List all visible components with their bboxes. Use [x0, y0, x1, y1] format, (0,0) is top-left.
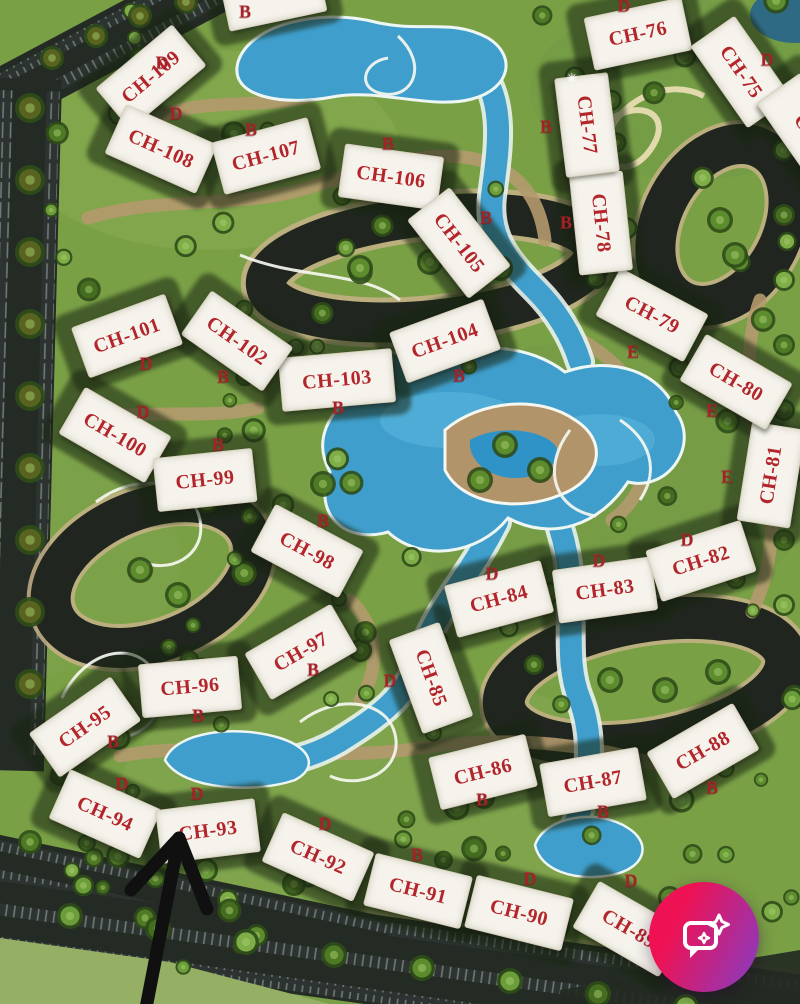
- building-label: CH-104: [408, 318, 481, 363]
- unit-type-marker: D: [618, 0, 631, 17]
- unit-type-marker: D: [384, 671, 397, 692]
- unit-type-marker: D: [486, 564, 499, 585]
- sparkle-star-small: [699, 933, 709, 943]
- unit-type-marker: D: [681, 530, 694, 551]
- building-label: CH-83: [574, 574, 636, 605]
- unit-type-marker: B: [411, 845, 423, 866]
- building-label: CH-82: [669, 541, 732, 581]
- unit-type-marker: B: [476, 790, 488, 811]
- unit-type-marker: D: [761, 50, 774, 71]
- building-label: CH-97: [270, 627, 333, 677]
- building-ch-96: CH-96: [138, 656, 242, 719]
- unit-type-marker: D: [170, 104, 183, 125]
- unit-type-marker: E: [721, 467, 733, 488]
- building-label: CH-103: [301, 366, 372, 395]
- building-label: CH-88: [672, 726, 735, 776]
- unit-type-marker: D: [191, 784, 204, 805]
- unit-type-marker: B: [382, 134, 394, 155]
- unit-type-marker: D: [625, 871, 638, 892]
- unit-type-marker: D: [524, 869, 537, 890]
- building-label: CH-79: [620, 291, 683, 339]
- unit-type-marker: B: [239, 2, 251, 23]
- building-label: CH-84: [467, 580, 530, 618]
- building-label: CH-90: [488, 895, 551, 932]
- unit-type-marker: B: [192, 706, 204, 727]
- unit-type-marker: B: [560, 213, 572, 234]
- building-label: CH-81: [755, 444, 787, 506]
- unit-type-marker: D: [140, 354, 153, 375]
- building-label: CH-78: [586, 192, 615, 253]
- unit-type-marker: B: [597, 802, 609, 823]
- building-label: CH-87: [562, 766, 624, 799]
- building-label: CH-77: [572, 94, 602, 156]
- unit-type-marker: B: [307, 660, 319, 681]
- building-label: CH-106: [355, 161, 427, 193]
- chat-sparkle-icon: [676, 909, 732, 965]
- building-label: CH-93: [177, 816, 239, 846]
- building-label: CH-99: [174, 465, 235, 494]
- unit-type-marker: B: [453, 366, 465, 387]
- building-label: CH-75: [715, 41, 768, 103]
- units-layer: CH-109CH-108CH-107CH-106CH-105CH-104CH-1…: [0, 0, 800, 1004]
- unit-type-marker: B: [540, 117, 552, 138]
- unit-type-marker: B: [706, 778, 718, 799]
- masterplan-map: CH-109CH-108CH-107CH-106CH-105CH-104CH-1…: [0, 0, 800, 1004]
- building-label: CH-101: [90, 313, 163, 358]
- unit-type-marker: B: [332, 398, 344, 419]
- unit-type-marker: E: [706, 401, 718, 422]
- unit-type-marker: E: [627, 342, 639, 363]
- building-label: CH-92: [286, 834, 349, 879]
- building-label: CH-108: [124, 124, 197, 173]
- building-label: CH-107: [229, 136, 302, 176]
- unit-type-marker: D: [116, 774, 129, 795]
- unit-type-marker: B: [217, 367, 229, 388]
- unit-type-marker: B: [317, 511, 329, 532]
- building-label: CH-86: [452, 754, 515, 791]
- building-label: CH-85: [410, 646, 452, 709]
- building-label: CH-96: [160, 673, 221, 701]
- building-ch-99: CH-99: [152, 448, 257, 512]
- unit-type-marker: D: [319, 814, 332, 835]
- building-label: CH: [789, 110, 800, 149]
- unit-type-marker: B: [107, 732, 119, 753]
- unit-type-marker: B: [212, 435, 224, 456]
- unit-type-marker: B: [480, 208, 492, 229]
- unit-type-marker: D: [137, 402, 150, 423]
- building-label: CH-94: [73, 791, 136, 836]
- building-label: CH-91: [387, 873, 450, 910]
- building-ch-78: CH-78: [569, 170, 633, 275]
- sparkle-star-large: [710, 915, 729, 934]
- unit-type-marker: D: [156, 53, 169, 74]
- building-label: CH-98: [275, 527, 338, 575]
- star-marker-icon: ✳: [567, 72, 578, 87]
- building-label: CH-80: [705, 357, 768, 407]
- chat-button[interactable]: [649, 882, 759, 992]
- building-label: CH-76: [607, 17, 670, 52]
- unit-type-marker: D: [593, 551, 606, 572]
- unit-type-marker: B: [245, 120, 257, 141]
